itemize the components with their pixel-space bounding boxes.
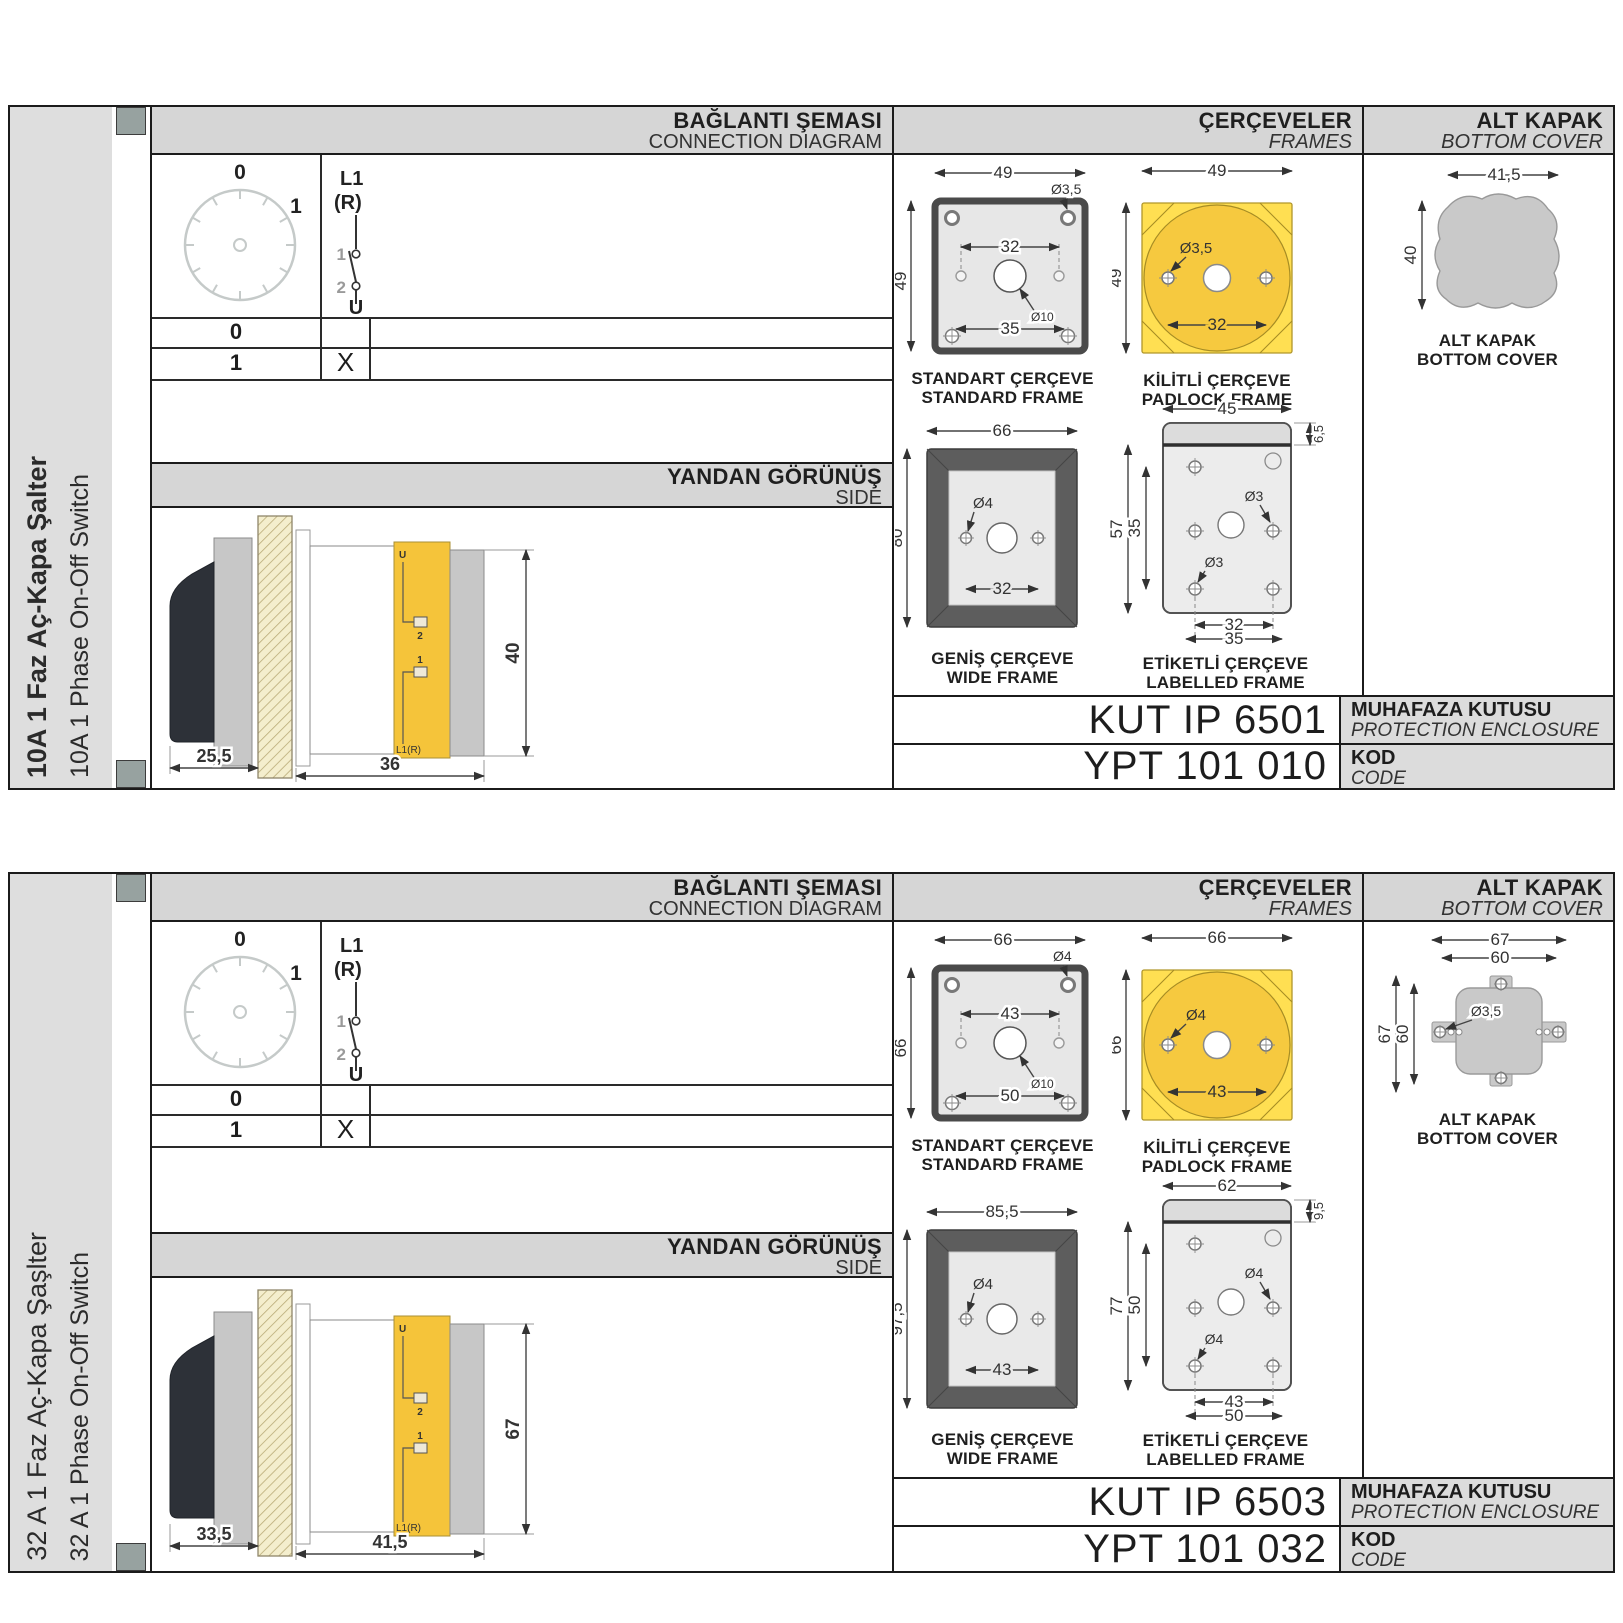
table-row-position: 1: [152, 350, 320, 376]
padlock-frame-drawing: Ø3,5 32 49 49: [1112, 157, 1322, 369]
product-code-row: YPT 101 010 KOD CODE: [892, 743, 1613, 788]
section-marker: [116, 874, 146, 902]
frames-header: ÇERÇEVELER FRAMES: [892, 107, 1362, 155]
header-title-tr: ALT KAPAK: [1362, 876, 1603, 899]
terminal-label: U: [349, 1064, 363, 1082]
dim-hole-mid: Ø3: [1245, 488, 1264, 504]
dim-h-outer: 67: [1375, 1025, 1394, 1044]
dim-pitch: 32: [993, 579, 1012, 598]
dim-height: 49: [895, 272, 910, 291]
enclosure-label: MUHAFAZA KUTUSU PROTECTION ENCLOSURE: [1339, 1479, 1613, 1525]
side-view-header: YANDAN GÖRÜNÜŞ SIDE: [152, 1232, 892, 1278]
column-divider: [1362, 107, 1364, 695]
frame-name-en: STANDARD FRAME: [895, 1155, 1110, 1174]
code-label-en: CODE: [1351, 1551, 1609, 1571]
bottom-cover-drawing: 67 60 67 60 Ø3,5: [1370, 928, 1605, 1108]
switch-contact-drawing: L1 (R) 1 2 U: [326, 159, 426, 315]
labelled-frame-block: 62 9,5 77 50 Ø4 Ø4 43 50 ETİKETLİ ÇERÇEV…: [1108, 1174, 1343, 1469]
table-row-position: 0: [152, 1086, 320, 1112]
dim-height: 66: [895, 1039, 910, 1058]
switch-handle: [170, 1336, 214, 1518]
enclosure-code: KUT IP 6503: [892, 1479, 1339, 1525]
dial-position-1: 1: [290, 195, 302, 218]
dim-pitch2: 50: [1001, 1086, 1020, 1105]
labelled-frame-block: 45 6,5 57 35 Ø3 Ø3 32 35 ETİKETLİ ÇERÇEV…: [1108, 397, 1343, 692]
header-title-en: BOTTOM COVER: [1362, 899, 1603, 920]
dim-pitch: 43: [1208, 1082, 1227, 1101]
header-title-tr: BAĞLANTI ŞEMASI: [152, 876, 882, 899]
column-divider: [1362, 874, 1364, 1477]
dial-position-0: 0: [234, 928, 246, 951]
header-title-tr: ÇERÇEVELER: [892, 876, 1352, 899]
padlock-frame-drawing: Ø4 43 66 66: [1112, 924, 1322, 1136]
table-row-position: 0: [152, 319, 320, 345]
header-title-tr: ALT KAPAK: [1362, 109, 1603, 132]
dim-hole: Ø4: [1186, 1007, 1206, 1024]
product-title-tr: 10A 1 Faz Aç-Kapa Şalter: [22, 456, 53, 778]
code-label: KOD CODE: [1339, 1527, 1613, 1571]
product-code: YPT 101 032: [892, 1527, 1339, 1571]
terminal-label: U: [349, 297, 363, 315]
cover-caption-tr: ALT KAPAK: [1370, 1110, 1605, 1129]
dim-center-hole: Ø10: [1031, 310, 1054, 324]
rotary-dial-drawing: 0 1: [162, 161, 322, 313]
phase-alt-label: (R): [334, 192, 362, 214]
wide-frame-block: Ø4 32 66 80 GENİŞ ÇERÇEVE WIDE FRAME: [895, 419, 1110, 687]
product-title-tr: 32 A 1 Faz Aç-Kapa Şaşlter: [22, 1232, 53, 1561]
wide-frame-drawing: Ø4 32 66 80: [895, 419, 1110, 647]
table-line: [369, 317, 371, 381]
section-marker: [116, 760, 146, 788]
table-line: [369, 1084, 371, 1148]
section-marker: [116, 107, 146, 135]
dim-height: 66: [1112, 1036, 1125, 1055]
phase-alt-label: (R): [334, 959, 362, 981]
terminal-u: U: [399, 550, 406, 561]
dim-width: 49: [1208, 161, 1227, 180]
cover-caption: ALT KAPAK BOTTOM COVER: [1370, 1110, 1605, 1148]
dim-width: 45: [1218, 399, 1237, 418]
contact-2-label: 2: [337, 1045, 346, 1064]
cover-caption-tr: ALT KAPAK: [1370, 331, 1605, 350]
labelled-frame-drawing: 45 6,5 57 35 Ø3 Ø3 32 35: [1108, 397, 1343, 652]
code-label-tr: KOD: [1351, 1529, 1609, 1551]
dim-height: 80: [895, 529, 906, 548]
dim-hole: Ø4: [1053, 948, 1072, 964]
frame-name-tr: GENİŞ ÇERÇEVE: [895, 649, 1110, 668]
header-title-en: FRAMES: [892, 132, 1352, 153]
panel-hatch: [258, 516, 292, 778]
table-row-mark: X: [322, 1114, 369, 1145]
enclosure-code-row: KUT IP 6501 MUHAFAZA KUTUSU PROTECTION E…: [892, 695, 1613, 743]
dim-width: 85,5: [985, 1202, 1018, 1221]
bottom-cover-header: ALT KAPAK BOTTOM COVER: [1362, 107, 1613, 155]
phase-label: L1: [340, 935, 363, 957]
frame-name-tr: GENİŞ ÇERÇEVE: [895, 1430, 1110, 1449]
rotary-dial-drawing: 0 1: [162, 928, 322, 1080]
wide-frame-block: Ø4 43 85,5 97,5 GENİŞ ÇERÇEVE WIDE FRAME: [895, 1200, 1110, 1468]
dim-inner: 35: [1125, 519, 1144, 538]
dim-hole: Ø3,5: [1051, 181, 1082, 197]
frame-name-en: LABELLED FRAME: [1108, 673, 1343, 692]
padlock-frame-block: Ø4 43 66 66 KİLİTLİ ÇERÇEVE PADLOCK FRAM…: [1112, 924, 1322, 1176]
dim-inner: 50: [1125, 1296, 1144, 1315]
enclosure-code-row: KUT IP 6503 MUHAFAZA KUTUSU PROTECTION E…: [892, 1477, 1613, 1525]
dial-position-0: 0: [234, 161, 246, 184]
dim-band: 9,5: [1311, 1202, 1326, 1220]
bottom-cover-block: 41,5 40 ALT KAPAK BOTTOM COVER: [1370, 161, 1605, 369]
dim-h-inner: 60: [1393, 1025, 1412, 1044]
dim-width: 66: [1208, 928, 1227, 947]
dim-width: 66: [994, 930, 1013, 949]
wide-frame-drawing: Ø4 43 85,5 97,5: [895, 1200, 1110, 1428]
frame-caption: ETİKETLİ ÇERÇEVE LABELLED FRAME: [1108, 654, 1343, 692]
dim-hole: Ø3,5: [1471, 1003, 1502, 1019]
column-divider: [892, 107, 894, 788]
frame-name-tr: STANDART ÇERÇEVE: [895, 1136, 1110, 1155]
phase-label: L1: [340, 168, 363, 190]
padlock-frame-block: Ø3,5 32 49 49 KİLİTLİ ÇERÇEVE PADLOCK FR…: [1112, 157, 1322, 409]
sidebar-strip: [112, 874, 152, 1571]
enclosure-label-en: PROTECTION ENCLOSURE: [1351, 721, 1609, 741]
frame-name-en: STANDARD FRAME: [895, 388, 1110, 407]
frame-name-tr: ETİKETLİ ÇERÇEVE: [1108, 654, 1343, 673]
enclosure-code: KUT IP 6501: [892, 697, 1339, 743]
switch-contact-drawing: L1 (R) 1 2 U: [326, 926, 426, 1082]
table-line: [152, 1146, 892, 1148]
contact-1-label: 1: [337, 1012, 346, 1031]
side-header-en: SIDE: [152, 1258, 882, 1279]
product-code-row: YPT 101 032 KOD CODE: [892, 1525, 1613, 1571]
side-header-tr: YANDAN GÖRÜNÜŞ: [152, 1235, 882, 1258]
terminal-1: 1: [417, 655, 423, 666]
section-sidebar: 32 A 1 Faz Aç-Kapa Şaşlter 32 A 1 Phase …: [10, 874, 114, 1571]
enclosure-label-tr: MUHAFAZA KUTUSU: [1351, 1481, 1609, 1503]
table-row-mark: X: [322, 347, 369, 378]
product-section-10a: 10A 1 Faz Aç-Kapa Şalter 10A 1 Phase On-…: [8, 105, 1615, 790]
dim-height: 77: [1108, 1297, 1126, 1316]
dim-height: 40: [503, 642, 524, 663]
cover-caption: ALT KAPAK BOTTOM COVER: [1370, 331, 1605, 369]
dim-height: 40: [1401, 246, 1420, 265]
frame-name-tr: STANDART ÇERÇEVE: [895, 369, 1110, 388]
table-line: [152, 1114, 892, 1116]
frame-name-tr: ETİKETLİ ÇERÇEVE: [1108, 1431, 1343, 1450]
bottom-cover-drawing: 41,5 40: [1370, 161, 1605, 329]
frame-caption: STANDART ÇERÇEVE STANDARD FRAME: [895, 369, 1110, 407]
dial-position-1: 1: [290, 962, 302, 985]
dim-hole-mid: Ø4: [1245, 1265, 1264, 1281]
code-label-tr: KOD: [1351, 747, 1609, 769]
frame-caption: KİLİTLİ ÇERÇEVE PADLOCK FRAME: [1112, 1138, 1322, 1176]
frame-name-tr: KİLİTLİ ÇERÇEVE: [1112, 1138, 1322, 1157]
code-label-en: CODE: [1351, 769, 1609, 789]
product-title-en: 32 A 1 Phase On-Off Switch: [66, 1252, 95, 1561]
dim-hole: Ø4: [973, 495, 993, 512]
dim-depth-body: 41,5: [372, 1532, 407, 1552]
dim-hole-bottom: Ø3: [1205, 554, 1224, 570]
labelled-frame-drawing: 62 9,5 77 50 Ø4 Ø4 43 50: [1108, 1174, 1343, 1429]
header-title-tr: ÇERÇEVELER: [892, 109, 1352, 132]
frame-name-en: WIDE FRAME: [895, 668, 1110, 687]
standard-frame-block: 66 Ø4 66 43 Ø10 50 STANDART ÇERÇEVE STAN…: [895, 924, 1110, 1174]
cover-caption-en: BOTTOM COVER: [1370, 1129, 1605, 1148]
frame-caption: ETİKETLİ ÇERÇEVE LABELLED FRAME: [1108, 1431, 1343, 1469]
enclosure-label: MUHAFAZA KUTUSU PROTECTION ENCLOSURE: [1339, 697, 1613, 743]
standard-frame-drawing: 66 Ø4 66 43 Ø10 50: [895, 924, 1110, 1134]
dim-height: 67: [503, 1418, 524, 1439]
code-label: KOD CODE: [1339, 745, 1613, 788]
dim-w-outer: 67: [1491, 930, 1510, 949]
dim-pitch: 43: [1001, 1004, 1020, 1023]
catalog-page: 10A 1 Faz Aç-Kapa Şalter 10A 1 Phase On-…: [0, 0, 1623, 1623]
product-code: YPT 101 010: [892, 745, 1339, 788]
enclosure-label-tr: MUHAFAZA KUTUSU: [1351, 699, 1609, 721]
dim-hole: Ø4: [973, 1276, 993, 1293]
switch-handle: [170, 562, 214, 742]
table-line: [152, 379, 892, 381]
dim-depth-handle: 25,5: [196, 746, 231, 766]
header-title-tr: BAĞLANTI ŞEMASI: [152, 109, 882, 132]
side-view-header: YANDAN GÖRÜNÜŞ SIDE: [152, 462, 892, 508]
dim-depth-body: 36: [380, 754, 400, 774]
frame-name-en: WIDE FRAME: [895, 1449, 1110, 1468]
header-title-en: BOTTOM COVER: [1362, 132, 1603, 153]
section-marker: [116, 1543, 146, 1571]
side-view-drawing: U 2 1 L1(R) 67 33,5 41,5: [162, 1286, 642, 1564]
side-view-drawing: U 2 1 L1(R) 40 25,5 36: [162, 512, 642, 786]
cover-caption-en: BOTTOM COVER: [1370, 350, 1605, 369]
frame-caption: GENİŞ ÇERÇEVE WIDE FRAME: [895, 649, 1110, 687]
terminal-u: U: [399, 1324, 406, 1335]
dim-pitch: 43: [993, 1360, 1012, 1379]
terminal-2: 2: [417, 1407, 423, 1418]
bottom-cover-block: 67 60 67 60 Ø3,5 ALT KAPAK BOTTOM COVER: [1370, 928, 1605, 1148]
dim-band: 6,5: [1311, 425, 1326, 443]
dim-hole-bottom: Ø4: [1205, 1331, 1224, 1347]
product-title-en: 10A 1 Phase On-Off Switch: [66, 474, 95, 778]
standard-frame-drawing: 49 Ø3,5 49 32 Ø10 35: [895, 157, 1110, 367]
column-divider: [892, 874, 894, 1571]
header-title-en: FRAMES: [892, 899, 1352, 920]
side-header-tr: YANDAN GÖRÜNÜŞ: [152, 465, 882, 488]
dim-height: 49: [1112, 269, 1125, 288]
dim-pitch: 32: [1208, 315, 1227, 334]
dim-w-inner: 60: [1491, 948, 1510, 967]
dim-pitch: 32: [1001, 237, 1020, 256]
terminal-1: 1: [417, 1431, 423, 1442]
dim-width: 66: [993, 421, 1012, 440]
connection-diagram-header: BAĞLANTI ŞEMASI CONNECTION DIAGRAM: [152, 107, 892, 155]
dim-hole: Ø3,5: [1180, 240, 1213, 257]
terminal-2: 2: [417, 631, 423, 642]
side-header-en: SIDE: [152, 488, 882, 509]
header-title-en: CONNECTION DIAGRAM: [152, 132, 882, 153]
sidebar-strip: [112, 107, 152, 788]
table-line: [152, 347, 892, 349]
dim-center-hole: Ø10: [1031, 1077, 1054, 1091]
standard-frame-block: 49 Ø3,5 49 32 Ø10 35 STANDART ÇERÇEVE ST…: [895, 157, 1110, 407]
frames-header: ÇERÇEVELER FRAMES: [892, 874, 1362, 922]
frame-name-en: LABELLED FRAME: [1108, 1450, 1343, 1469]
dim-height: 57: [1108, 520, 1126, 539]
frame-caption: STANDART ÇERÇEVE STANDARD FRAME: [895, 1136, 1110, 1174]
contact-1-label: 1: [337, 245, 346, 264]
frame-name-tr: KİLİTLİ ÇERÇEVE: [1112, 371, 1322, 390]
section-sidebar: 10A 1 Faz Aç-Kapa Şalter 10A 1 Phase On-…: [10, 107, 114, 788]
dim-width: 41,5: [1487, 165, 1520, 184]
enclosure-label-en: PROTECTION ENCLOSURE: [1351, 1503, 1609, 1523]
connection-diagram-header: BAĞLANTI ŞEMASI CONNECTION DIAGRAM: [152, 874, 892, 922]
table-row-position: 1: [152, 1117, 320, 1143]
frame-caption: GENİŞ ÇERÇEVE WIDE FRAME: [895, 1430, 1110, 1468]
dim-width: 49: [994, 163, 1013, 182]
header-title-en: CONNECTION DIAGRAM: [152, 899, 882, 920]
product-section-32a: 32 A 1 Faz Aç-Kapa Şaşlter 32 A 1 Phase …: [8, 872, 1615, 1573]
bottom-cover-header: ALT KAPAK BOTTOM COVER: [1362, 874, 1613, 922]
panel-hatch: [258, 1290, 292, 1556]
dim-pitch2: 50: [1225, 1406, 1244, 1425]
contact-2-label: 2: [337, 278, 346, 297]
dim-pitch2: 35: [1001, 319, 1020, 338]
dim-pitch2: 35: [1225, 629, 1244, 648]
dim-height: 97,5: [895, 1302, 906, 1335]
dim-depth-handle: 33,5: [196, 1524, 231, 1544]
dim-width: 62: [1218, 1176, 1237, 1195]
